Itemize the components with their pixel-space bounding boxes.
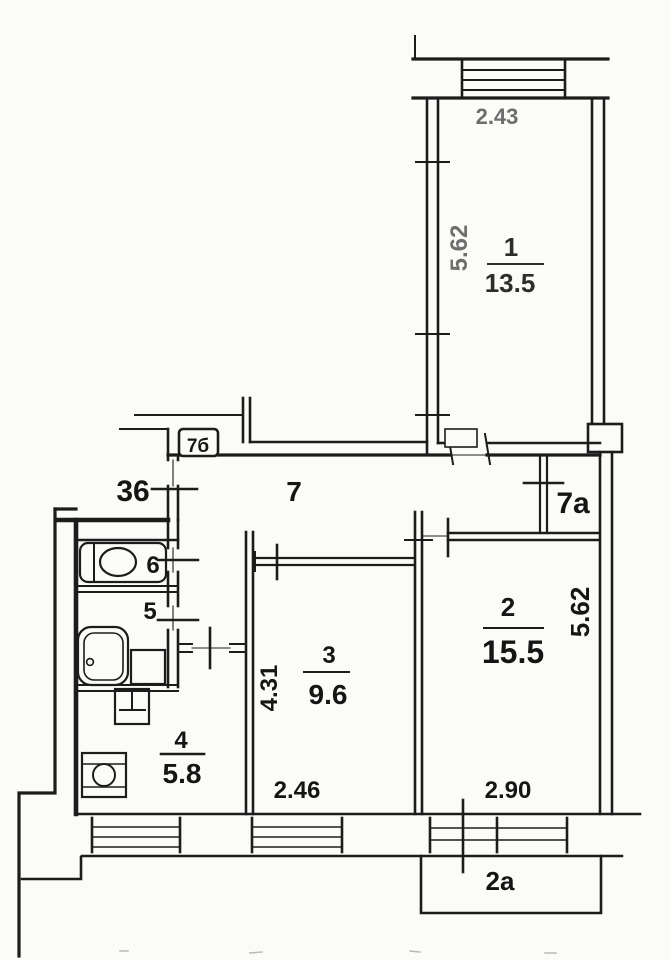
room-2-number: 2 [501,592,515,622]
room-3-area: 9.6 [309,679,348,710]
kitchen-door-wall [178,628,246,668]
wc-number: 6 [146,552,159,579]
kitchen-window-symbol [92,818,180,852]
loggia-window-symbol [462,59,565,98]
room-1-width-dim: 2.43 [476,104,519,129]
room-3-window-symbol [252,818,342,852]
hall-top-wall [168,442,600,455]
room-2-window-symbol [430,818,567,852]
bath-number: 5 [143,598,156,625]
balcony-number: 2a [486,866,515,896]
room-2-depth-dim: 5.62 [565,587,595,638]
room-3-width-dim: 2.46 [274,777,321,804]
room-2-area: 15.5 [482,634,544,670]
landing-number: 36 [116,475,149,508]
hall-number: 7 [286,476,302,507]
floor-plan-canvas: 2.43 5.62 1 13.5 36 7б 7 7a 6 5 4 5.8 3 … [0,0,670,960]
kitchen-number: 4 [174,727,188,754]
stove-icon [82,753,126,797]
room-1-area: 13.5 [485,268,536,298]
room-1-depth-dim: 5.62 [446,225,473,272]
room-2-width-dim: 2.90 [485,777,532,804]
loggia-top-wall [413,36,608,98]
room-2-top-wall [422,519,598,556]
door-leaf [445,429,477,447]
bathtub-icon [78,627,128,685]
stairwell-outline [19,509,81,956]
bottom-outer-wall [76,814,640,856]
right-outer-wall [600,452,612,814]
closet-7b-number: 7б [187,436,209,457]
room-3-number: 3 [322,642,335,669]
sink-icon [115,689,149,724]
wall-junction-column [588,424,622,452]
room-3-depth-dim: 4.31 [256,665,283,712]
room-1-door-ticks [445,429,490,464]
corridor-7a-number: 7a [556,487,590,520]
floor-plan-scan: 2.43 5.62 1 13.5 36 7б 7 7a 6 5 4 5.8 3 … [0,0,670,960]
room-1-number: 1 [504,232,518,262]
scan-artifacts [120,951,556,953]
washbasin-icon [131,650,165,684]
kitchen-area: 5.8 [163,758,202,789]
